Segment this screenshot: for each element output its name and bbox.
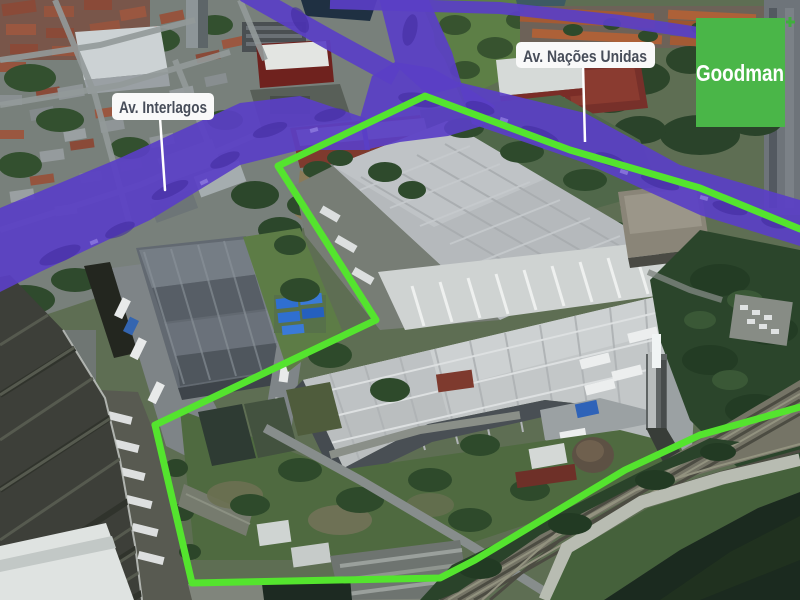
svg-text:Av. Interlagos: Av. Interlagos xyxy=(119,98,207,117)
svg-text:Av. Nações Unidas: Av. Nações Unidas xyxy=(523,47,647,66)
svg-text:Goodman: Goodman xyxy=(696,60,784,86)
